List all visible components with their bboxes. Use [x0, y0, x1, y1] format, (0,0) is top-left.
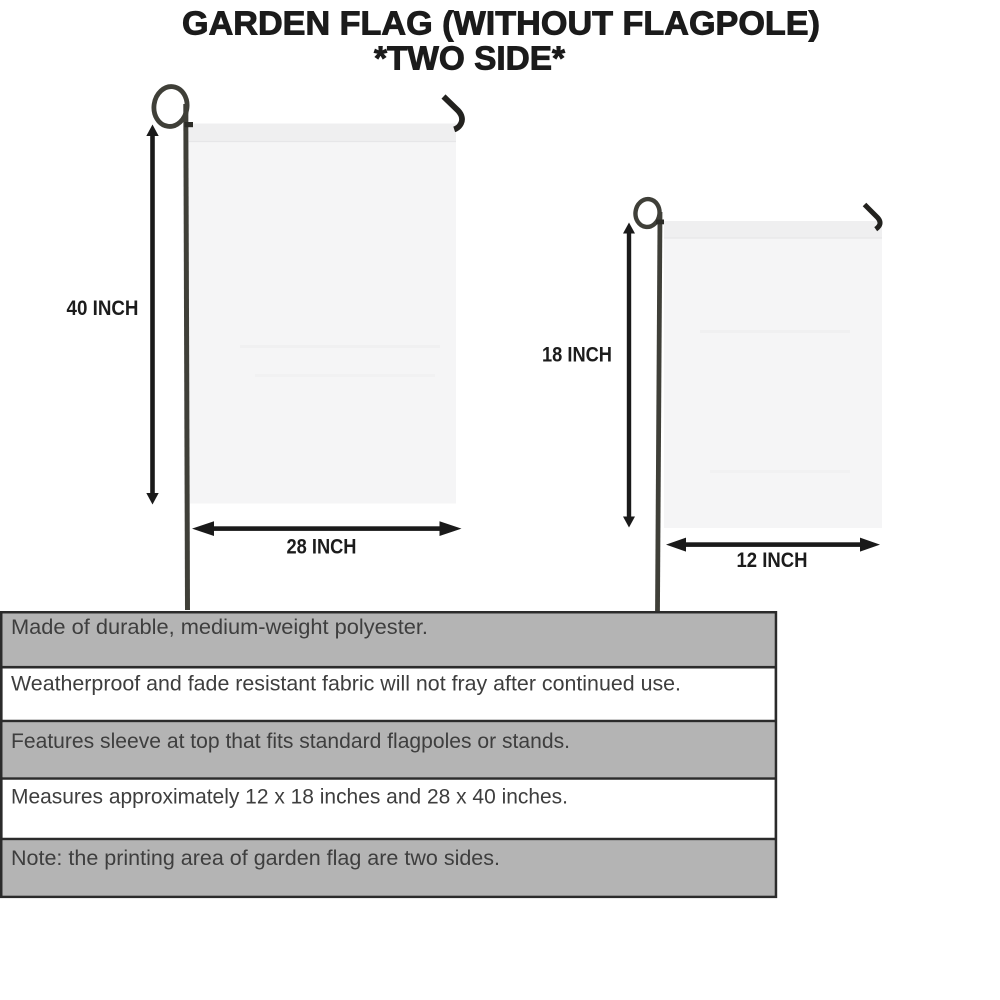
svg-text:12 INCH: 12 INCH [737, 549, 808, 572]
svg-text:Weatherproof and fade resistan: Weatherproof and fade resistant fabric w… [11, 673, 681, 696]
svg-text:40 INCH: 40 INCH [67, 297, 139, 320]
svg-text:Features sleeve at top that fi: Features sleeve at top that fits standar… [11, 730, 570, 753]
svg-text:18 INCH: 18 INCH [542, 344, 612, 367]
svg-text:Made of durable, medium-weight: Made of durable, medium-weight polyester… [11, 616, 428, 639]
svg-text:*TWO SIDE*: *TWO SIDE* [374, 40, 565, 77]
svg-text:Note: the printing area of gar: Note: the printing area of garden flag a… [11, 847, 500, 870]
svg-text:Measures approximately 12 x 18: Measures approximately 12 x 18 inches an… [11, 786, 568, 809]
svg-text:28 INCH: 28 INCH [287, 536, 357, 559]
svg-text:GARDEN FLAG (WITHOUT FLAGPOLE): GARDEN FLAG (WITHOUT FLAGPOLE) [182, 5, 820, 42]
